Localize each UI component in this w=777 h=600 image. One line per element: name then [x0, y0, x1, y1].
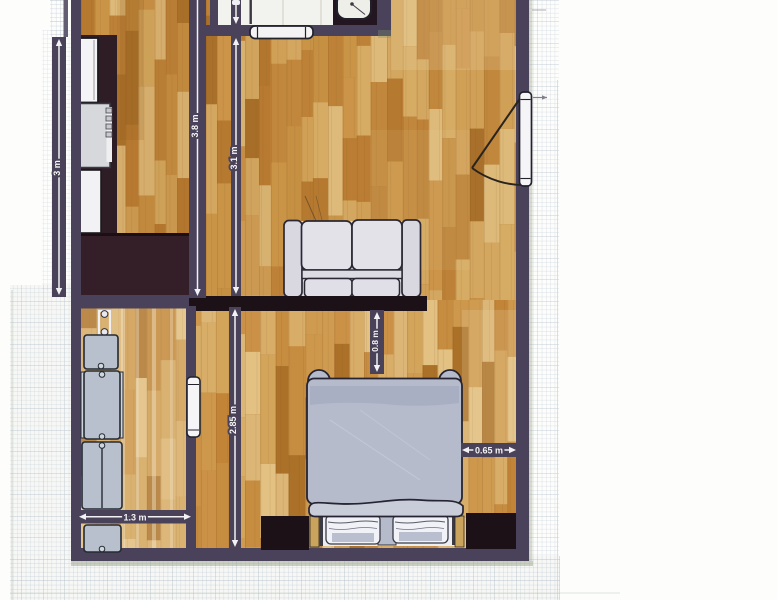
- svg-text:0.8 m: 0.8 m: [370, 330, 380, 352]
- svg-text:3.8 m: 3.8 m: [190, 114, 200, 137]
- svg-text:2.85 m: 2.85 m: [228, 406, 238, 434]
- svg-text:0.65 m: 0.65 m: [475, 446, 503, 456]
- svg-text:3 m: 3 m: [52, 160, 62, 176]
- svg-text:3.1 m: 3.1 m: [229, 146, 239, 169]
- svg-text:1.3 m: 1.3 m: [123, 513, 146, 523]
